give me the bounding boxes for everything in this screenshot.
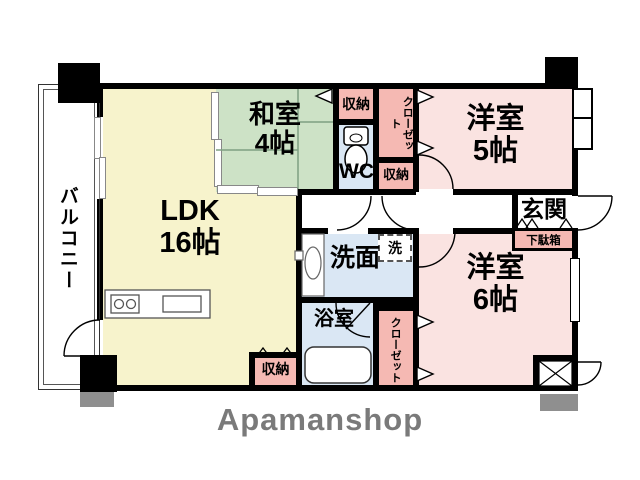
washitsu-label: 和室 4帖 (216, 100, 334, 157)
balcony-label: バルコニー (56, 166, 77, 311)
wall-xbox-frame (533, 355, 578, 391)
ldk-size: 16帖 (138, 228, 242, 260)
wall-closet-bottom-top (373, 297, 419, 311)
western6-label: 洋室 6帖 (419, 253, 572, 317)
closet-top-label: クローゼット (389, 91, 413, 155)
wall-bottom (97, 385, 578, 391)
storage-top-label: 収納 (339, 97, 373, 112)
wall-corridor-bottom-a (296, 228, 328, 234)
wall-washroom-bath (296, 297, 379, 303)
column-top-right (545, 57, 578, 84)
ldk-name: LDK (138, 196, 242, 228)
washitsu-sliding-door-bottom2 (257, 187, 298, 196)
wall-bath-closet (373, 297, 379, 391)
western5-name: 洋室 (419, 104, 572, 136)
western6-size: 6帖 (419, 285, 572, 317)
washroom-label: 洗面 (322, 245, 388, 273)
washer-label: 洗 (388, 238, 402, 258)
western5-label: 洋室 5帖 (419, 104, 572, 168)
wall-corridor-top-b (453, 189, 578, 195)
wall-closet-divider (373, 157, 419, 163)
window-western5 (572, 88, 593, 150)
wall-storage-ldk-top (249, 352, 301, 358)
ldk-label: LDK 16帖 (138, 196, 242, 260)
shoe-cabinet-label: 下駄箱 (526, 232, 561, 248)
entrance-door-arc (578, 196, 612, 230)
rear-door-arc (578, 362, 601, 385)
closet-bottom-label: クローゼット (389, 316, 401, 384)
entrance-label: 玄関 (516, 197, 572, 222)
western6-name: 洋室 (419, 253, 572, 285)
wall-corridor-top-a (296, 189, 416, 195)
column-bottom-left (80, 355, 117, 392)
washitsu-size: 4帖 (216, 129, 334, 158)
washitsu-sliding-door-bottom (217, 185, 259, 194)
window-western5-divider (574, 117, 591, 119)
storage-mid-label: 収納 (379, 168, 413, 182)
floor-plan: 下駄箱 洗 (0, 0, 640, 480)
western5-size: 5帖 (419, 136, 572, 168)
shoe-cabinet-box: 下駄箱 (512, 228, 575, 251)
column-top-left (58, 63, 100, 103)
apamanshop-logo: Apamanshop (0, 402, 640, 438)
wall-corridor-bottom-c (453, 228, 515, 234)
bathroom-label: 浴室 (304, 308, 364, 330)
wc-label: WC (339, 160, 373, 183)
wall-wc-divider (333, 119, 379, 125)
window-balcony-pane1 (94, 117, 101, 159)
window-balcony-pane2 (99, 157, 106, 199)
washitsu-name: 和室 (216, 100, 334, 129)
storage-ldk-label: 収納 (255, 362, 296, 377)
